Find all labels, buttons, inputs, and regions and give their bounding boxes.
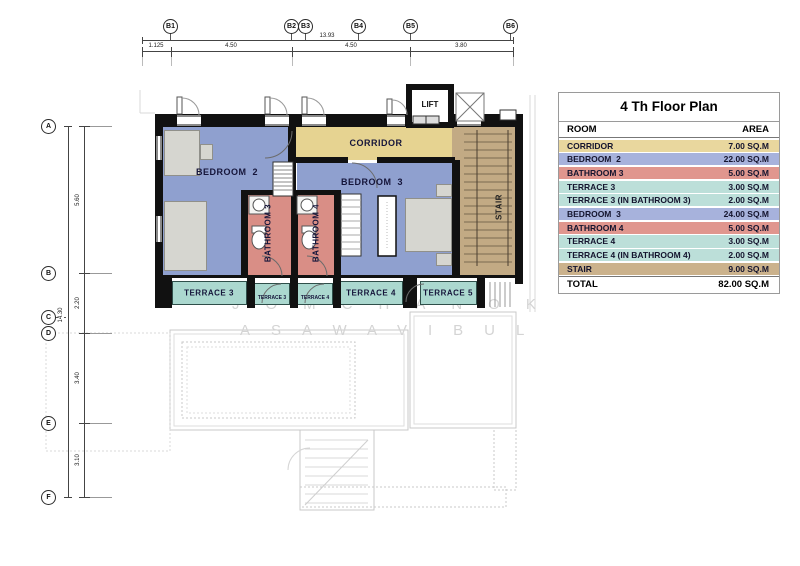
lift-label: LIFT — [422, 100, 439, 109]
terrace4-label: TERRACE 4 — [346, 289, 396, 298]
grid-bubble-B6: B6 — [503, 19, 518, 34]
window-top-3 — [302, 115, 326, 126]
grid-bubble-B2: B2 — [284, 19, 299, 34]
nightstand-bedroom3-top — [436, 184, 452, 197]
grid-bubble-C: C — [41, 310, 56, 325]
dim-tick — [410, 47, 411, 57]
table-header: ROOM AREA — [559, 122, 779, 138]
grid-tick — [358, 33, 359, 40]
corridor-label: CORRIDOR — [350, 138, 403, 148]
wall-stair-left — [452, 160, 460, 276]
grid-line-ext — [90, 423, 112, 424]
dim-tick — [79, 497, 90, 498]
wall-corridor-bottom-b — [377, 157, 455, 163]
grid-line-ext — [90, 273, 112, 274]
wall-pillar-5 — [403, 277, 417, 308]
grid-bubble-A: A — [41, 119, 56, 134]
wall-bathrooms-mid — [291, 193, 298, 276]
dim-tick — [171, 47, 172, 57]
bed-bedroom2-top — [164, 130, 200, 176]
table-row: STAIR9.00 SQ.M — [559, 263, 779, 275]
dim-tick — [292, 47, 293, 57]
dim-tick — [79, 273, 90, 274]
bed-bedroom2-bottom — [164, 201, 207, 271]
wall-pillar-2 — [247, 277, 255, 308]
lift-shaft: LIFT — [406, 84, 454, 128]
grid-line-ext — [90, 333, 112, 334]
dim-label-left-seg2: 2.20 — [75, 296, 81, 310]
dim-label-left-seg1: 5.60 — [75, 193, 81, 207]
dim-tick — [79, 333, 90, 334]
table-row: TERRACE 4 (IN BATHROOM 4)2.00 SQ.M — [559, 249, 779, 261]
table-row: TERRACE 43.00 SQ.M — [559, 235, 779, 247]
grid-bubble-D: D — [41, 326, 56, 341]
dim-tick — [513, 47, 514, 57]
bedroom2-label: BEDROOM 2 — [196, 167, 258, 177]
floor-plan-sheet: JOMCHANOK ASAWAVIBUL B1 B2 B3 B4 B5 B6 1… — [0, 0, 800, 566]
dim-tick — [79, 423, 90, 424]
nightstand-bedroom2 — [200, 144, 213, 160]
grid-line-ext — [90, 126, 112, 127]
grid-bubble-B3: B3 — [298, 19, 313, 34]
window-top-1 — [177, 115, 201, 126]
wall-bathrooms-top — [241, 190, 341, 195]
dim-label-left-seg3: 3.40 — [75, 371, 81, 385]
dim-tick — [64, 126, 72, 127]
table-title: 4 Th Floor Plan — [559, 93, 779, 122]
terrace4-small-label: TERRACE 4 — [301, 295, 329, 301]
room-stair — [452, 127, 515, 276]
dimension-line-top-total — [142, 40, 513, 41]
grid-line-ext — [142, 57, 143, 66]
grid-bubble-B4: B4 — [351, 19, 366, 34]
bathroom3-label: BATHROOM 3 — [264, 204, 273, 262]
grid-bubble-B5: B5 — [403, 19, 418, 34]
dim-label-seg4: 3.80 — [454, 43, 468, 49]
dim-label-seg1: 1.125 — [147, 43, 164, 49]
dim-label-top-total: 13.93 — [318, 33, 335, 39]
grid-line-ext — [171, 57, 172, 66]
terrace5-label: TERRACE 5 — [423, 289, 473, 298]
window-left-1 — [156, 136, 162, 160]
grid-tick — [305, 33, 306, 40]
dimension-line-top-segments — [142, 51, 513, 52]
wall-bathroom4-right — [334, 193, 341, 276]
grid-bubble-B1: B1 — [163, 19, 178, 34]
dim-label-left-seg4: 3.10 — [75, 453, 81, 467]
area-table: 4 Th Floor Plan ROOM AREA CORRIDOR7.00 S… — [558, 92, 780, 294]
table-total-row: TOTAL82.00 SQ.M — [559, 276, 779, 293]
dim-tick — [142, 47, 143, 57]
wall-pillar-4 — [333, 277, 341, 308]
dimension-line-left-segments — [84, 126, 85, 497]
table-row: CORRIDOR7.00 SQ.M — [559, 140, 779, 152]
window-top-5 — [457, 115, 481, 126]
wall-pillar-1 — [155, 277, 172, 308]
grid-tick — [170, 33, 171, 40]
table-row: BATHROOM 45.00 SQ.M — [559, 222, 779, 234]
table-row: BEDROOM 324.00 SQ.M — [559, 208, 779, 220]
grid-line-ext — [90, 497, 112, 498]
dim-tick — [79, 126, 90, 127]
grid-tick — [510, 33, 511, 40]
watermark-line2: ASAWAVIBUL — [240, 322, 545, 339]
grid-bubble-B: B — [41, 266, 56, 281]
grid-bubble-E: E — [41, 416, 56, 431]
table-row: BATHROOM 35.00 SQ.M — [559, 167, 779, 179]
table-row: BEDROOM 222.00 SQ.M — [559, 153, 779, 165]
dim-label-seg3: 4.50 — [344, 43, 358, 49]
window-top-2 — [265, 115, 289, 126]
wall-pillar-6 — [477, 277, 485, 308]
terrace4-small-area — [297, 283, 333, 305]
bed-bedroom3 — [405, 198, 452, 252]
bedroom3-label: BEDROOM 3 — [341, 177, 403, 187]
table-row: TERRACE 33.00 SQ.M — [559, 181, 779, 193]
wall-bathroom3-left — [241, 193, 248, 276]
grid-bubble-F: F — [41, 490, 56, 505]
table-rows: CORRIDOR7.00 SQ.M BEDROOM 222.00 SQ.M BA… — [559, 138, 779, 276]
dim-tick — [64, 497, 72, 498]
bathroom4-label: BATHROOM 4 — [312, 204, 321, 262]
nightstand-bedroom3-bottom — [436, 253, 452, 266]
terrace3-small-area — [254, 283, 290, 305]
stair-label: STAIR — [495, 194, 504, 220]
dim-tick — [513, 37, 514, 44]
column-area: AREA — [742, 122, 769, 137]
terrace3-label: TERRACE 3 — [184, 289, 234, 298]
dimension-line-left-total — [68, 126, 69, 497]
column-room: ROOM — [567, 122, 597, 137]
grid-line-ext — [292, 57, 293, 66]
wall-right — [515, 114, 523, 284]
dim-label-seg2: 4.50 — [224, 43, 238, 49]
grid-line-ext — [513, 57, 514, 66]
dim-tick — [142, 37, 143, 44]
dim-label-left-total: 14.30 — [58, 306, 64, 323]
window-top-4 — [387, 115, 405, 126]
wall-pillar-3 — [290, 277, 298, 308]
grid-line-ext — [410, 57, 411, 66]
table-row: TERRACE 3 (IN BATHROOM 3)2.00 SQ.M — [559, 194, 779, 206]
terrace3-small-label: TERRACE 3 — [258, 295, 286, 301]
grid-tick — [410, 33, 411, 40]
window-left-2 — [156, 216, 162, 242]
grid-tick — [291, 33, 292, 40]
wall-corridor-bottom-a — [293, 157, 348, 163]
